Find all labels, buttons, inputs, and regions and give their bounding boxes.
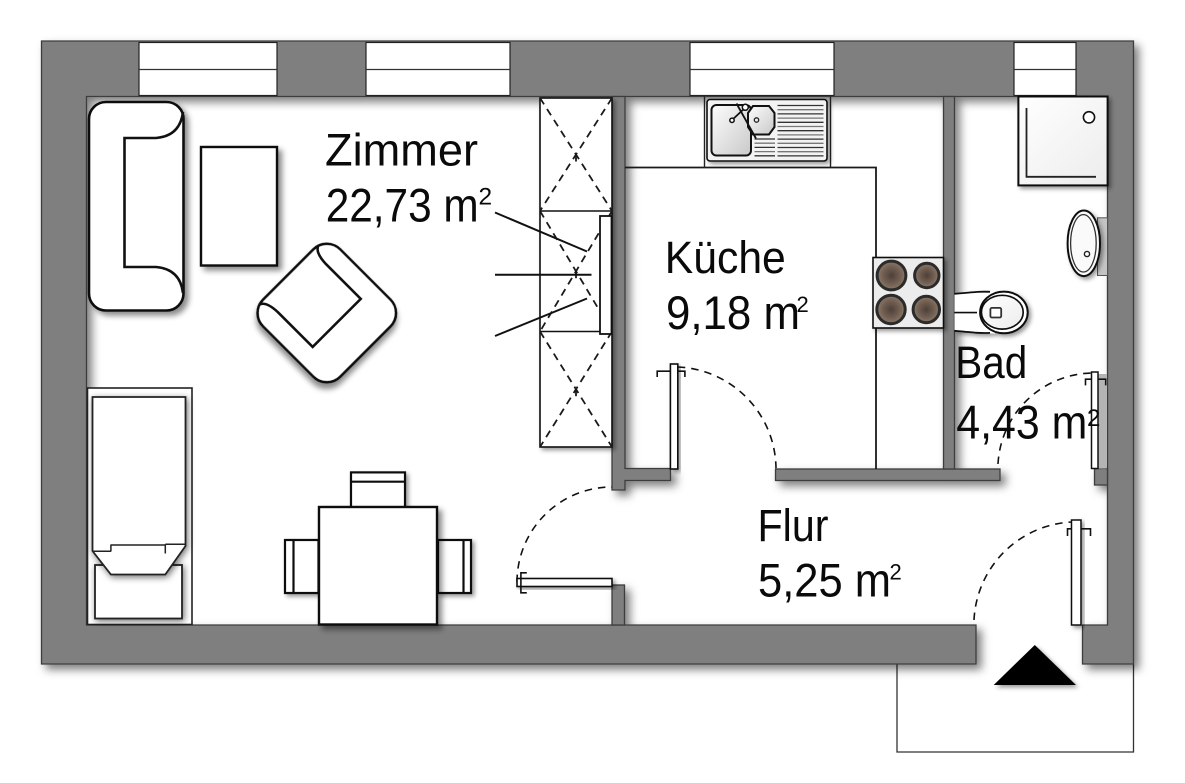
- svg-text:Flur: Flur: [758, 500, 829, 551]
- svg-text:4,43 m: 4,43 m: [956, 396, 1087, 449]
- svg-text:2: 2: [890, 560, 902, 585]
- svg-text:22,73 m: 22,73 m: [326, 178, 479, 231]
- svg-text:5,25 m: 5,25 m: [758, 554, 891, 607]
- svg-text:Bad: Bad: [955, 337, 1027, 388]
- svg-text:Zimmer: Zimmer: [325, 125, 478, 176]
- svg-text:2: 2: [797, 292, 809, 317]
- svg-text:2: 2: [479, 184, 493, 211]
- svg-text:9,18 m: 9,18 m: [666, 286, 800, 339]
- svg-text:Küche: Küche: [665, 232, 786, 283]
- svg-text:2: 2: [1087, 405, 1100, 432]
